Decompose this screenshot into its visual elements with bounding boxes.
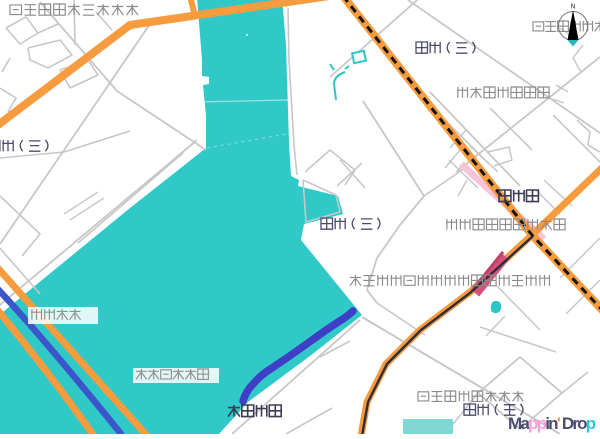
svg-text:Mappin' Drop: Mappin' Drop — [508, 414, 596, 433]
svg-text:N: N — [570, 4, 575, 11]
